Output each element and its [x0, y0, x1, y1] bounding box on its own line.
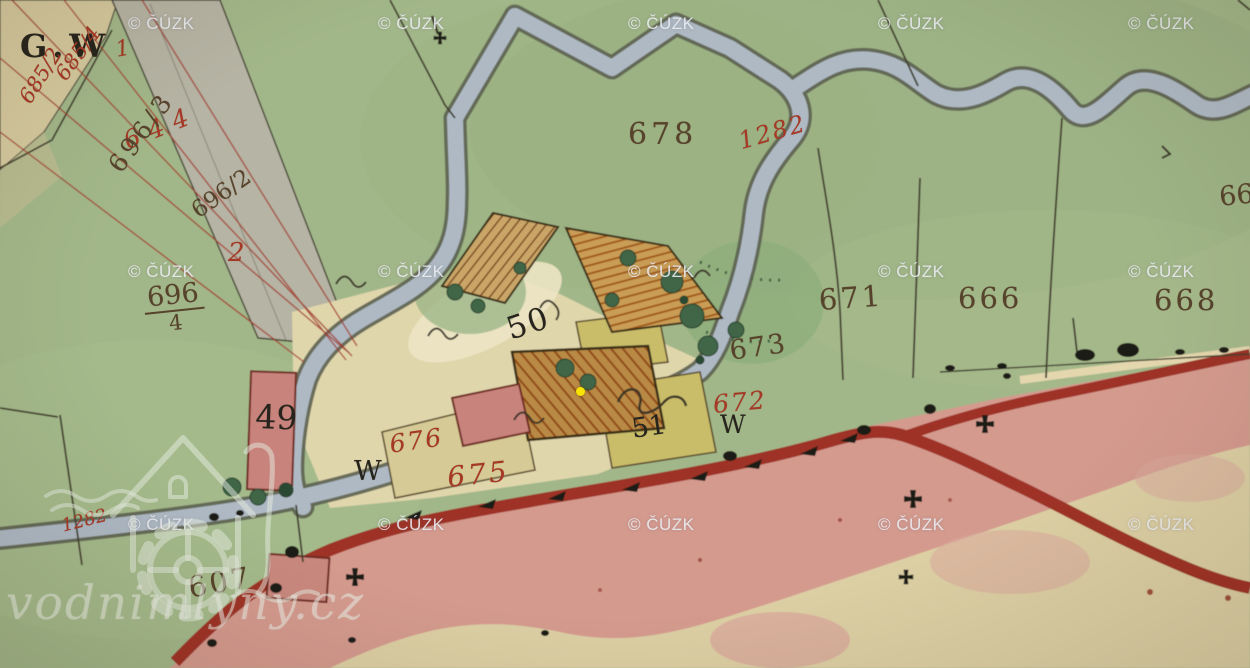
- map-viewport[interactable]: G.W 685 1 685/4 685/2 644 696/3 696/2 2 …: [0, 0, 1250, 668]
- cadastral-map-canvas: [0, 0, 1250, 668]
- mill-location-marker[interactable]: [576, 387, 585, 396]
